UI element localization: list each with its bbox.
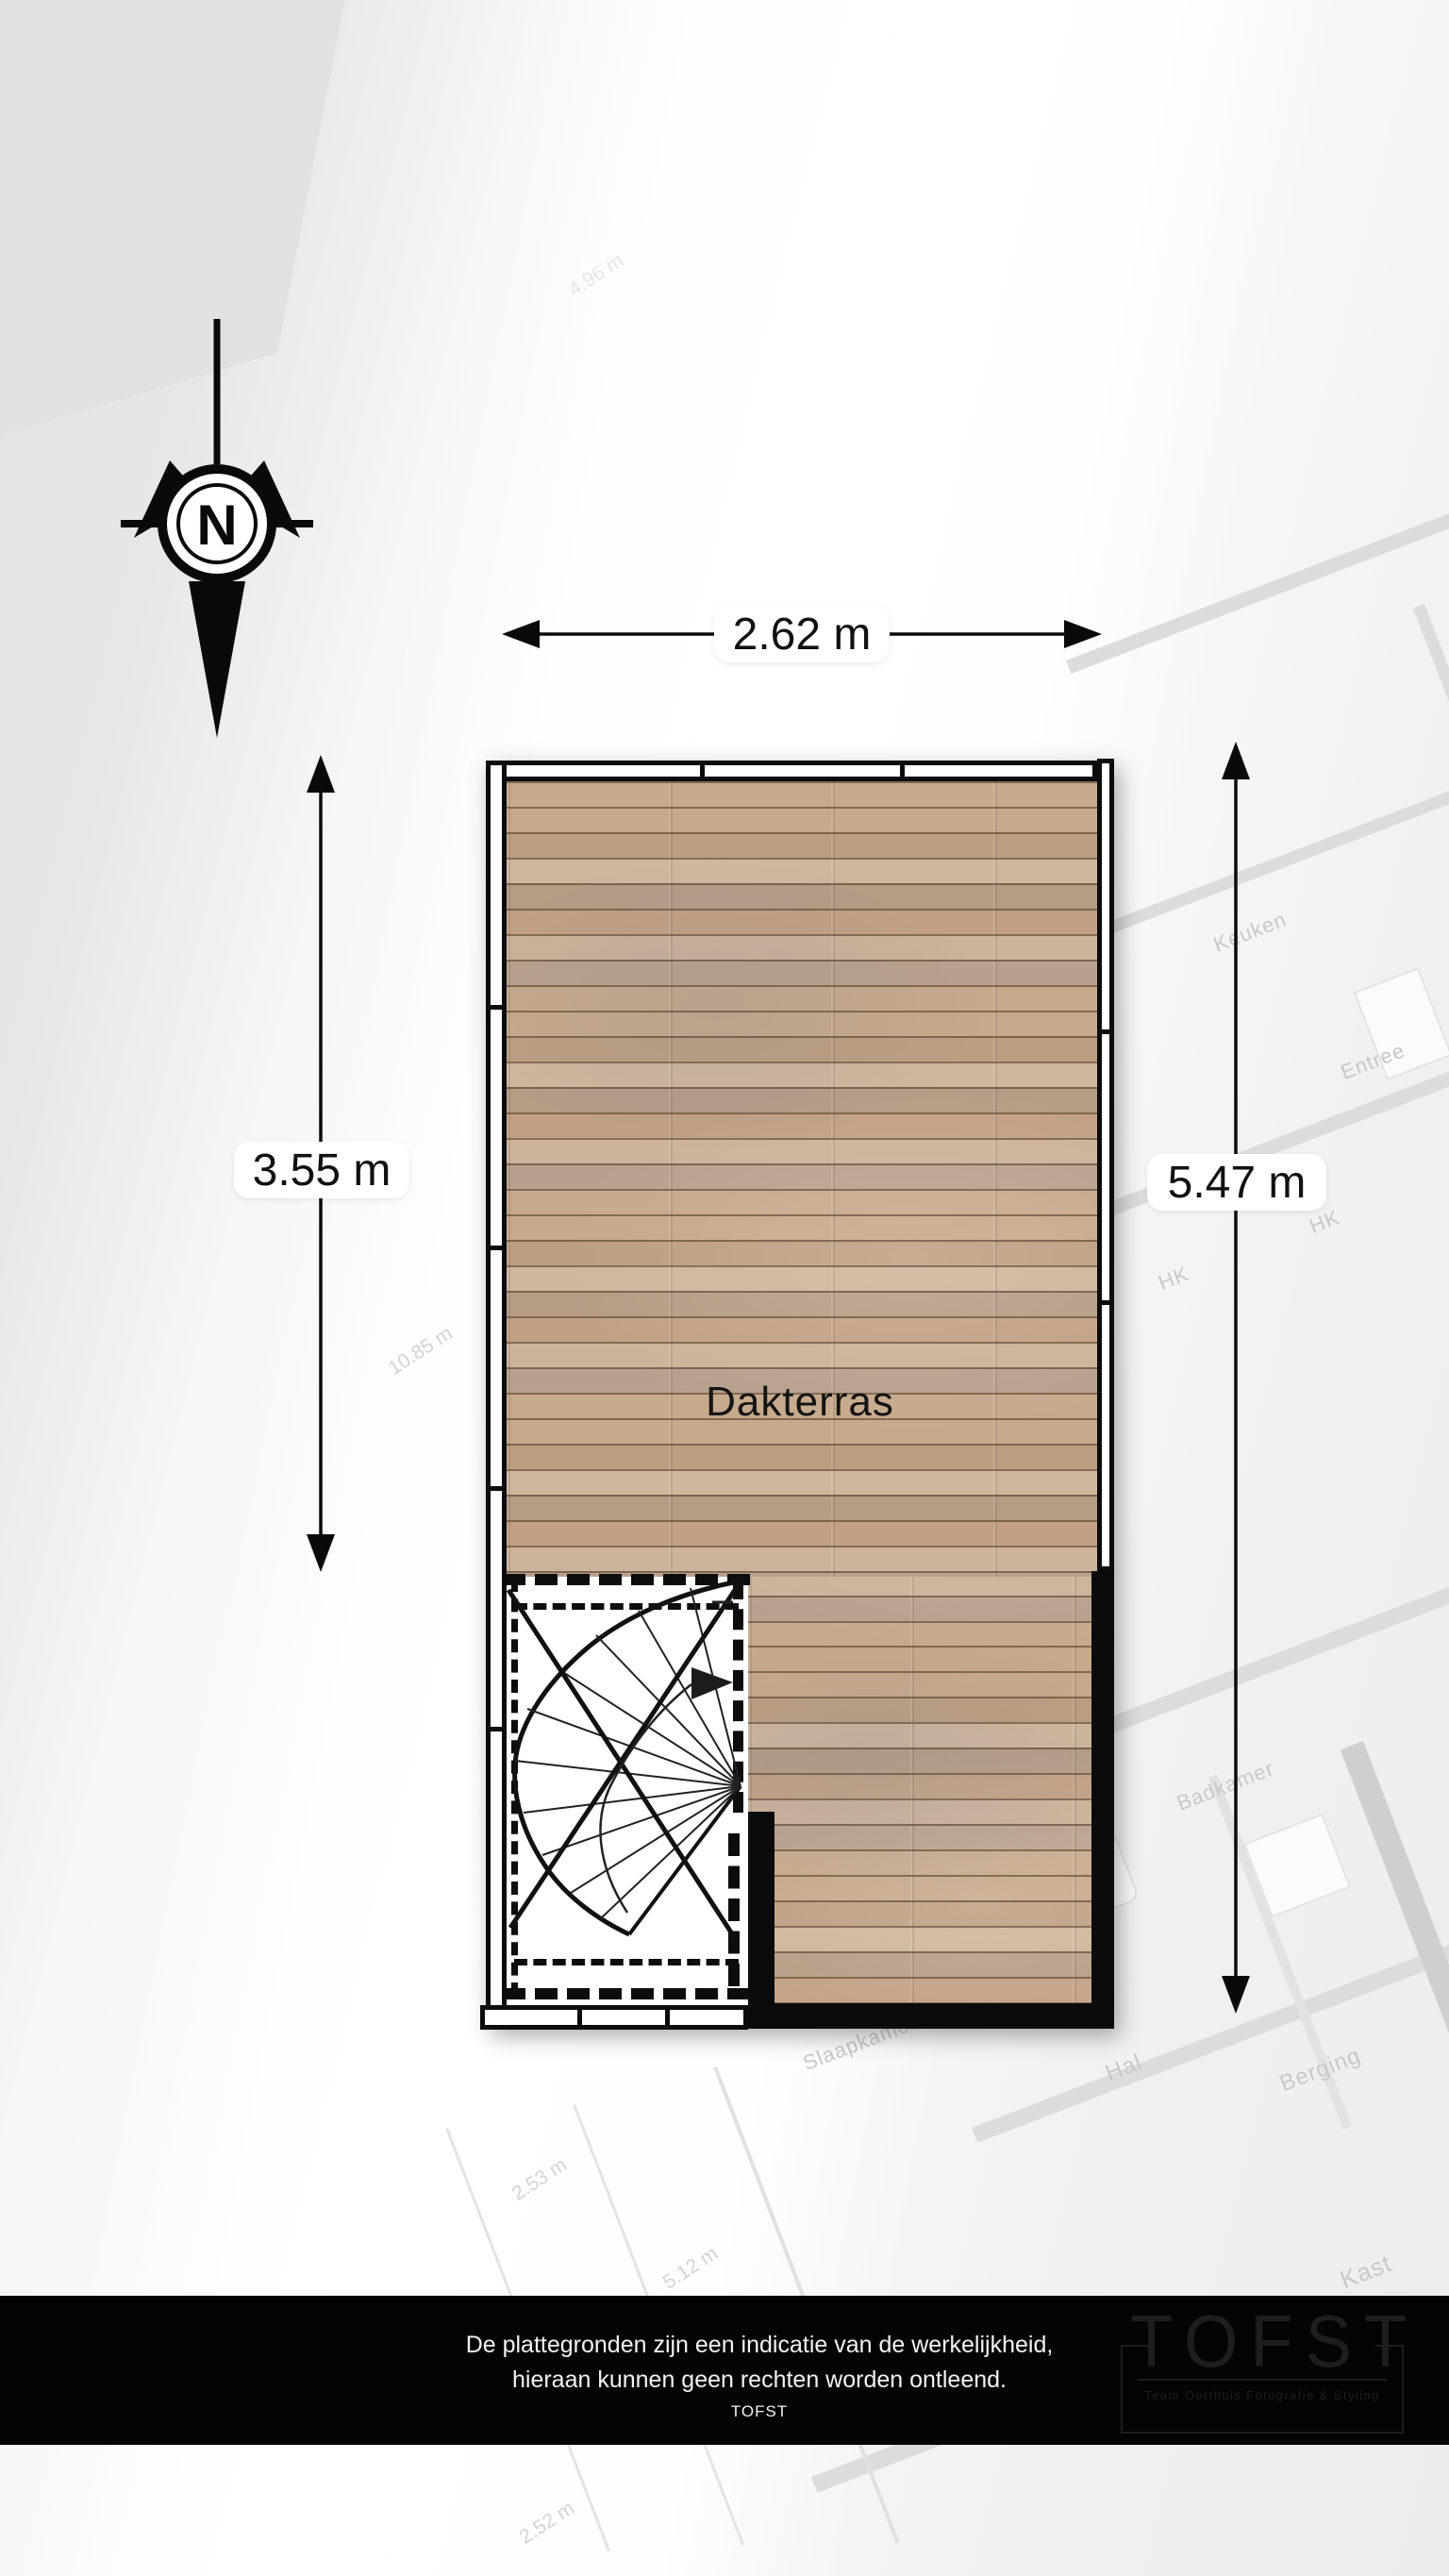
railing-top	[486, 761, 1097, 781]
railing-post	[491, 1005, 502, 1010]
logo-frame	[1375, 2345, 1404, 2347]
railing-post	[577, 2010, 582, 2025]
roof-terrace-plan: Dakterras	[486, 761, 1114, 2029]
tofst-logo: TOFST Team Oorthuis Fotografie & Styling	[1121, 2307, 1404, 2434]
disclaimer-bar: De plattegronden zijn een indicatie van …	[0, 2296, 1449, 2445]
wall-bottom	[748, 2003, 1114, 2029]
railing-right	[1097, 759, 1114, 1571]
dimension-value: 5.47 m	[1168, 1157, 1307, 1209]
dimension-label-height-partial: 3.55 m	[234, 1142, 409, 1198]
bg-room-label: HK	[1155, 1262, 1192, 1296]
logo-frame	[1121, 2345, 1149, 2347]
dimension-value: 2.62 m	[733, 609, 872, 661]
railing-post	[491, 1246, 502, 1250]
dimension-label-height-full: 5.47 m	[1147, 1154, 1326, 1211]
railing-post	[665, 2010, 670, 2025]
bg-room-label: Hal	[1102, 2049, 1145, 2087]
railing-post	[1102, 1029, 1109, 1034]
logo-frame	[1121, 2345, 1404, 2434]
wall-stair-side	[748, 1812, 774, 2029]
railing-post	[1102, 1300, 1109, 1305]
dimension-label-width: 2.62 m	[714, 606, 890, 662]
railing-post	[700, 765, 705, 777]
railing-stair-bottom	[480, 2005, 748, 2030]
wood-deck-lower	[748, 1577, 1091, 2009]
bg-wall	[1413, 604, 1449, 899]
svg-text:N: N	[196, 493, 237, 557]
north-compass-icon: N	[113, 311, 321, 755]
wall-right	[1091, 1571, 1114, 2029]
railing-post	[900, 765, 905, 777]
floorplan-page: Keuken HK HK Entree Badkamer Hal Berging…	[0, 0, 1449, 2576]
railing-left	[486, 761, 507, 2029]
room-title: Dakterras	[486, 1379, 1114, 1426]
railing-post	[491, 1727, 502, 1731]
dimension-arrow-right	[1215, 740, 1257, 2016]
bg-room-label: Kast	[1336, 2249, 1395, 2295]
dimension-value: 3.55 m	[253, 1145, 391, 1196]
wood-deck	[507, 781, 1097, 1577]
stair-opening	[507, 1577, 748, 2005]
railing-post	[491, 1486, 502, 1491]
spiral-staircase	[507, 1577, 748, 2005]
